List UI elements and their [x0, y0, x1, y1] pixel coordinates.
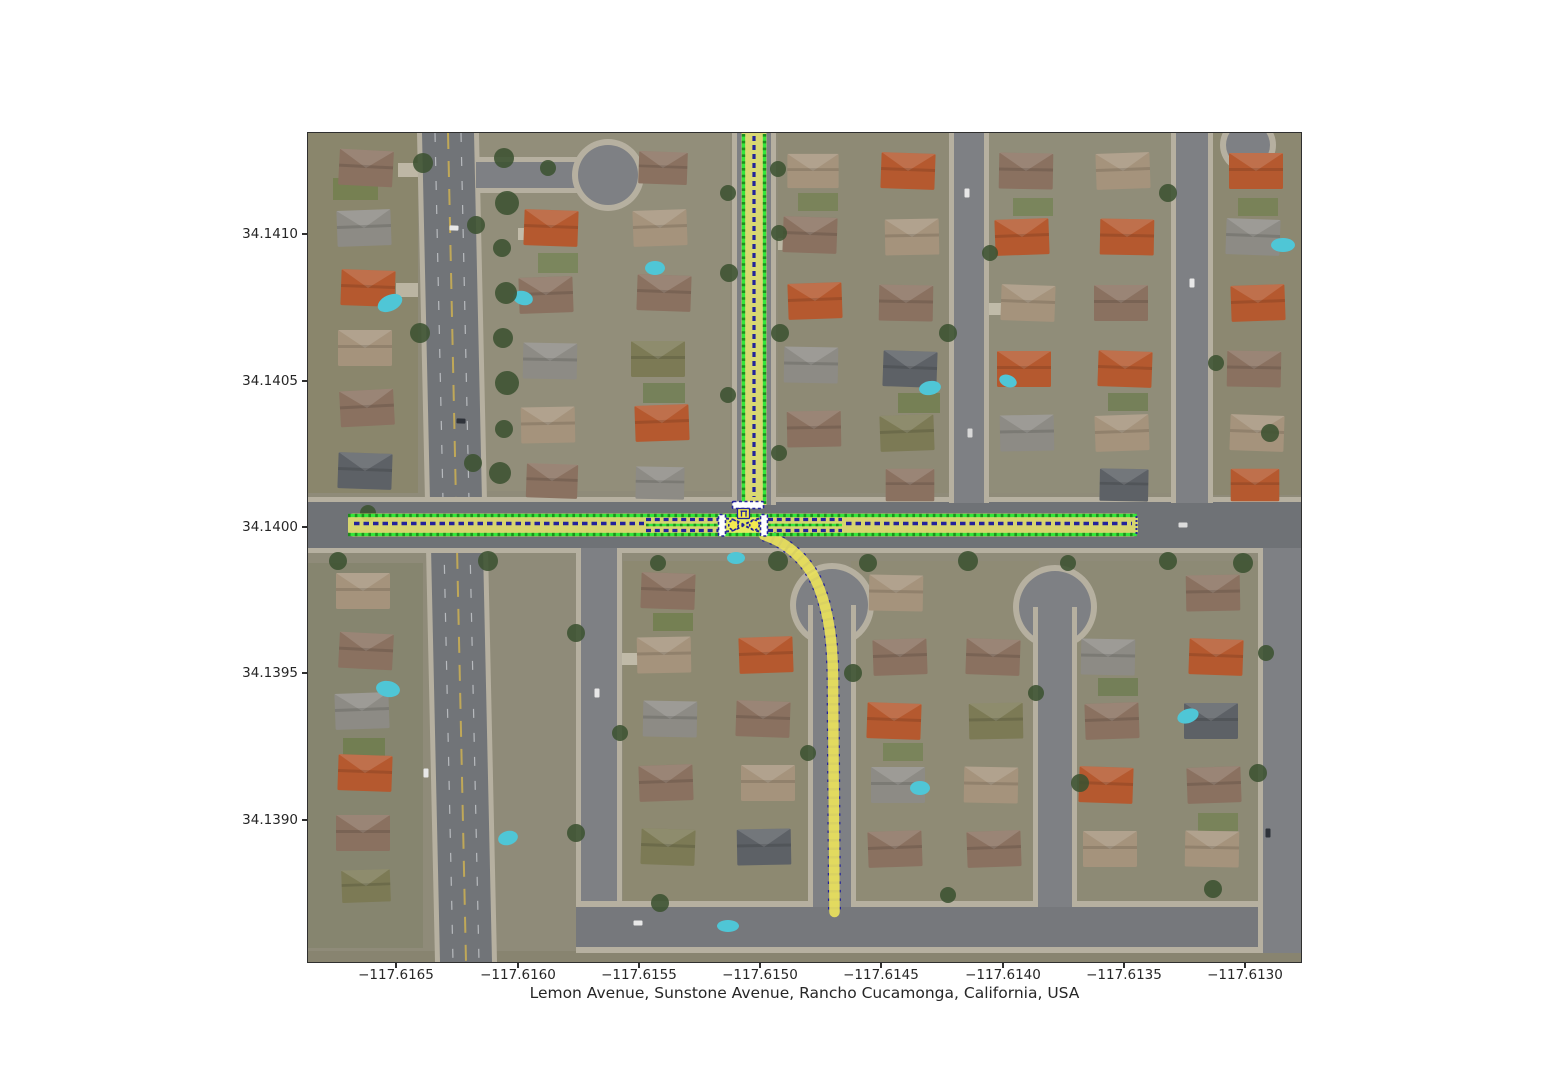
tree — [939, 324, 957, 342]
car — [1190, 279, 1195, 288]
street — [1263, 548, 1301, 953]
x-tick-label: −117.6130 — [1195, 967, 1295, 983]
bottom-road — [576, 907, 1301, 947]
yard-patch — [396, 283, 418, 297]
house — [523, 209, 578, 247]
house — [1000, 284, 1055, 322]
tree — [800, 745, 816, 761]
y-tick-mark — [302, 233, 307, 234]
yard-patch — [653, 613, 693, 631]
car — [595, 689, 600, 698]
house — [1097, 350, 1152, 388]
house — [1000, 415, 1055, 452]
house — [787, 282, 842, 320]
house — [880, 152, 935, 190]
car — [1179, 523, 1188, 528]
tree — [1159, 552, 1177, 570]
map-plot — [307, 132, 1302, 963]
tree — [770, 161, 786, 177]
house — [637, 637, 692, 674]
tree — [1208, 355, 1224, 371]
tree — [1071, 774, 1089, 792]
y-tick-label: 34.1390 — [226, 812, 298, 828]
tree — [612, 725, 628, 741]
traffic-sign-box — [738, 509, 750, 519]
yard-patch — [1098, 678, 1138, 696]
house — [638, 151, 688, 185]
tree — [768, 551, 788, 571]
y-tick-mark — [302, 380, 307, 381]
tree — [410, 323, 430, 343]
house — [1094, 414, 1149, 452]
house — [994, 218, 1049, 256]
house — [523, 343, 578, 380]
pool — [717, 920, 739, 932]
house — [1227, 351, 1282, 388]
house — [735, 700, 790, 738]
house — [886, 469, 935, 501]
house — [1231, 469, 1280, 501]
street — [954, 133, 984, 503]
tree — [495, 371, 519, 395]
house — [969, 703, 1024, 740]
yard-patch — [798, 193, 838, 211]
cul-de-sac-bulb — [578, 145, 638, 205]
tree — [1261, 424, 1279, 442]
house — [879, 285, 934, 322]
pool — [645, 261, 665, 275]
house — [334, 692, 389, 730]
tree — [464, 454, 482, 472]
house — [640, 828, 695, 866]
tree — [720, 185, 736, 201]
house — [787, 154, 838, 188]
tree — [489, 462, 511, 484]
car — [1266, 829, 1271, 838]
junction-marker-circle — [729, 520, 739, 530]
tree — [494, 148, 514, 168]
house — [869, 575, 924, 612]
x-tick-label: −117.6145 — [831, 967, 931, 983]
tree — [720, 264, 738, 282]
y-tick-mark — [302, 526, 307, 527]
x-tick-label: −117.6150 — [710, 967, 810, 983]
tree — [567, 824, 585, 842]
house — [1230, 284, 1285, 322]
street — [1176, 133, 1208, 503]
pool — [910, 781, 930, 795]
tree — [1249, 764, 1267, 782]
tree — [329, 552, 347, 570]
house — [338, 149, 394, 188]
yard-patch — [883, 743, 923, 761]
yard-patch — [1198, 813, 1238, 831]
tree — [1028, 685, 1044, 701]
tree — [493, 328, 513, 348]
house — [879, 414, 934, 452]
yard-patch — [538, 253, 578, 273]
car — [424, 769, 429, 778]
house — [787, 411, 842, 448]
y-tick-label: 34.1410 — [226, 226, 298, 242]
tree — [1204, 880, 1222, 898]
yard-patch — [1108, 393, 1148, 411]
house — [738, 636, 793, 674]
y-tick-label: 34.1405 — [226, 373, 298, 389]
house — [640, 572, 695, 610]
tree — [1233, 553, 1253, 573]
pool — [727, 552, 745, 564]
tree — [651, 894, 669, 912]
house — [341, 869, 391, 903]
car — [968, 429, 973, 438]
house — [1186, 766, 1241, 804]
tree — [771, 225, 787, 241]
aerial-imagery — [308, 133, 1301, 962]
tree — [650, 555, 666, 571]
house — [636, 274, 691, 312]
house — [336, 573, 390, 609]
house — [338, 632, 394, 671]
lemon-west-stop-line — [719, 515, 726, 537]
car — [449, 225, 458, 230]
tree — [567, 624, 585, 642]
street — [1038, 607, 1072, 907]
tree — [771, 324, 789, 342]
house — [1229, 153, 1283, 189]
tree — [844, 664, 862, 682]
house — [1186, 575, 1241, 612]
house — [526, 463, 578, 499]
yard-patch — [898, 393, 940, 413]
car — [965, 189, 970, 198]
house — [1081, 639, 1136, 676]
house — [1095, 152, 1150, 190]
tree — [495, 282, 517, 304]
house — [867, 830, 922, 868]
house — [1185, 831, 1240, 868]
house — [643, 701, 698, 738]
lemon-east-stop-line — [761, 515, 768, 537]
yard-patch — [1238, 198, 1278, 216]
house — [1083, 831, 1137, 867]
tree — [940, 887, 956, 903]
house — [339, 389, 395, 428]
house — [866, 702, 921, 740]
tree — [413, 153, 433, 173]
car — [634, 921, 643, 926]
house — [632, 209, 687, 247]
house — [964, 767, 1019, 804]
y-tick-label: 34.1400 — [226, 519, 298, 535]
house — [1099, 468, 1148, 501]
junction-marker-circle — [750, 520, 760, 530]
house — [337, 452, 392, 490]
tree — [495, 191, 519, 215]
tree — [1159, 184, 1177, 202]
pool — [1271, 238, 1295, 252]
y-tick-label: 34.1395 — [226, 665, 298, 681]
tree — [859, 554, 877, 572]
house — [638, 764, 693, 802]
axis-title: Lemon Avenue, Sunstone Avenue, Rancho Cu… — [308, 984, 1301, 1003]
house — [634, 404, 689, 442]
house — [337, 754, 392, 792]
tree — [495, 420, 513, 438]
house — [999, 153, 1054, 190]
house — [782, 216, 837, 254]
house — [966, 830, 1021, 868]
tree — [1258, 645, 1274, 661]
y-tick-mark — [302, 672, 307, 673]
house — [631, 341, 685, 377]
house — [737, 829, 792, 866]
house — [885, 219, 940, 256]
tree — [771, 445, 787, 461]
house — [741, 765, 795, 801]
house — [521, 407, 576, 444]
matplotlib-figure: 34.1410 34.1405 34.1400 34.1395 34.1390 … — [0, 0, 1565, 1080]
x-tick-label: −117.6135 — [1074, 967, 1174, 983]
map-canvas — [308, 133, 1301, 962]
tree — [493, 239, 511, 257]
house — [784, 347, 839, 384]
tree — [478, 551, 498, 571]
sunstone-stop-line — [733, 502, 764, 509]
x-tick-label: −117.6140 — [953, 967, 1053, 983]
tree — [982, 245, 998, 261]
tree — [540, 160, 556, 176]
tree — [1060, 555, 1076, 571]
tree — [720, 387, 736, 403]
car — [456, 418, 465, 423]
tree — [467, 216, 485, 234]
house — [336, 209, 391, 247]
house — [1225, 218, 1280, 256]
house — [1084, 702, 1139, 740]
y-tick-mark — [302, 819, 307, 820]
x-tick-label: −117.6160 — [468, 967, 568, 983]
house — [338, 330, 392, 366]
house — [965, 638, 1020, 676]
house — [1100, 219, 1155, 256]
house — [872, 638, 927, 676]
house — [1094, 285, 1148, 321]
x-tick-label: −117.6155 — [589, 967, 689, 983]
house — [336, 815, 390, 851]
house — [635, 466, 684, 499]
yard-patch — [1013, 198, 1053, 216]
tree — [958, 551, 978, 571]
house — [1188, 638, 1243, 676]
x-tick-label: −117.6165 — [346, 967, 446, 983]
street — [581, 548, 617, 953]
yard-patch — [643, 383, 685, 403]
